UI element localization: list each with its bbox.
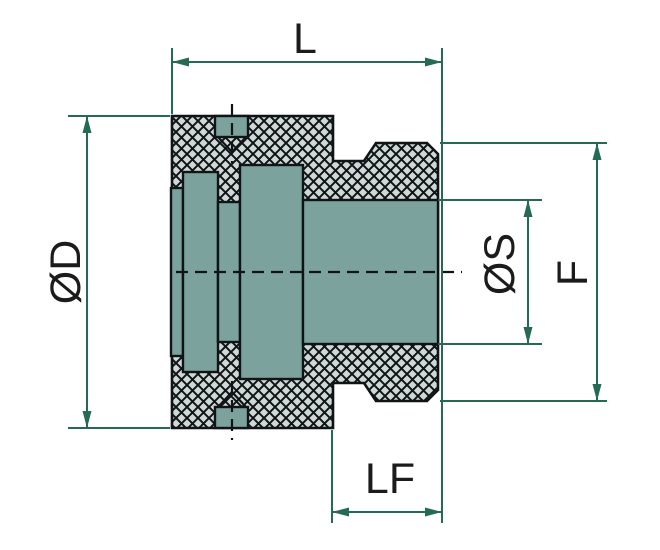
- dim-label-L: L: [293, 15, 317, 63]
- arrow-F-top: [593, 143, 602, 160]
- dimension-LF: LF: [332, 430, 442, 523]
- dim-label-OD: ØD: [42, 240, 90, 305]
- dimension-OD: ØD: [42, 116, 170, 428]
- arrow-OD-top: [83, 116, 92, 133]
- dim-label-OS: ØS: [476, 233, 524, 295]
- arrow-F-bottom: [593, 384, 602, 401]
- coupling-body: [171, 116, 438, 428]
- technical-drawing: L ØD ØS F: [0, 0, 660, 550]
- arrow-LF-left: [332, 508, 349, 517]
- arrow-OS-bottom: [524, 327, 533, 344]
- dim-label-F: F: [549, 260, 597, 286]
- dim-label-LF: LF: [365, 455, 415, 503]
- drawing-canvas: L ØD ØS F: [0, 0, 660, 550]
- arrow-L-left: [172, 58, 189, 67]
- arrow-OS-top: [524, 200, 533, 217]
- arrow-L-right: [425, 58, 442, 67]
- arrow-LF-right: [425, 508, 442, 517]
- arrow-OD-bottom: [83, 411, 92, 428]
